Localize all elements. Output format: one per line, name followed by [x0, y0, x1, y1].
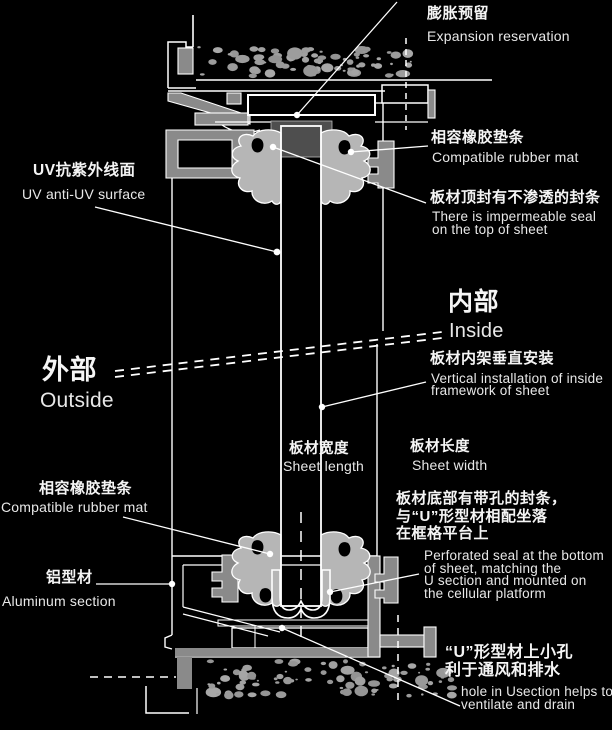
- label-line: “U”形型材上小孔: [445, 644, 573, 662]
- aggregate-dot: [371, 689, 377, 694]
- aggregate-dot: [213, 47, 223, 53]
- aggregate-dot: [260, 48, 265, 52]
- leader-dot: [319, 404, 325, 410]
- aggregate-dot: [400, 671, 407, 675]
- aggregate-dot: [224, 669, 228, 671]
- label-sheet-width-cn: 板材长度: [410, 440, 470, 455]
- u-section-channel: [232, 628, 368, 648]
- top-concrete-strip: [197, 46, 413, 78]
- aggregate-dot: [277, 674, 284, 679]
- aggregate-dot: [208, 59, 216, 65]
- aggregate-dot: [307, 47, 314, 51]
- frame-notch: [165, 635, 172, 649]
- aggregate-dot: [415, 675, 428, 686]
- cellular-platform: [218, 620, 368, 626]
- aggregate-dot: [253, 55, 261, 61]
- aggregate-dot: [351, 69, 359, 75]
- aggregate-dot: [264, 62, 266, 64]
- label-aluminum-en: Aluminum section: [2, 594, 116, 609]
- label-uv-cn: UV抗紫外线面: [33, 163, 136, 179]
- aggregate-dot: [249, 74, 257, 79]
- aggregate-dot: [390, 63, 393, 65]
- aggregate-dot: [368, 680, 380, 687]
- aggregate-dot: [290, 68, 296, 71]
- leader-vertical-install: [322, 382, 426, 407]
- aggregate-dot: [343, 70, 346, 72]
- aggregate-dot: [200, 73, 205, 75]
- aggregate-dot: [396, 70, 410, 77]
- aggregate-dot: [355, 677, 366, 686]
- aggregate-dot: [403, 49, 414, 58]
- diagram: 膨胀预留 Expansion reservation 相容橡胶垫条 Compat…: [0, 0, 612, 730]
- inside-outside-boundary: [115, 332, 442, 371]
- aggregate-dot: [288, 661, 298, 667]
- aggregate-dot: [439, 680, 442, 683]
- aggregate-dot: [283, 677, 292, 684]
- top-right-profile-box: [382, 85, 428, 103]
- label-line: 在框格平台上: [396, 525, 567, 543]
- aggregate-dot: [408, 663, 417, 669]
- aggregate-dot: [227, 63, 238, 71]
- aggregate-dot: [197, 46, 200, 48]
- leader-dot: [267, 551, 273, 557]
- aggregate-dot: [206, 687, 221, 697]
- horizontal-profile-bar: [195, 113, 248, 125]
- bottom-left-wing-bracket: [212, 555, 238, 602]
- aggregate-dot: [365, 671, 368, 673]
- aggregate-dot: [355, 686, 369, 697]
- aggregate-dot: [217, 682, 221, 685]
- aggregate-dot: [224, 692, 233, 700]
- aggregate-dot: [336, 675, 344, 682]
- aggregate-dot: [236, 684, 245, 691]
- aggregate-dot: [387, 677, 394, 681]
- aggregate-dot: [382, 666, 387, 669]
- leader-uv: [95, 207, 277, 252]
- aggregate-dot: [249, 66, 259, 74]
- gasket-hole: [260, 588, 272, 602]
- aggregate-dot: [447, 685, 457, 690]
- aggregate-dot: [304, 667, 311, 672]
- aggregate-dot: [327, 680, 333, 684]
- aggregate-dot: [207, 683, 210, 685]
- label-bottom-seal-en: Perforated seal at the bottom of sheet, …: [424, 550, 604, 601]
- aggregate-dot: [321, 670, 327, 675]
- leader-rubber-bottom: [123, 517, 270, 554]
- aggregate-dot: [371, 693, 375, 695]
- aggregate-dot: [250, 46, 259, 51]
- aggregate-dot: [425, 668, 430, 671]
- aggregate-dot: [387, 51, 392, 54]
- aggregate-dot: [265, 69, 276, 77]
- label-rubber-mat-bottom-cn: 相容橡胶垫条: [39, 481, 132, 497]
- aggregate-dot: [358, 62, 365, 67]
- label-outside-en: Outside: [40, 390, 114, 412]
- label-inside-en: Inside: [449, 321, 504, 342]
- aggregate-dot: [356, 57, 360, 59]
- aggregate-dot: [337, 55, 341, 58]
- label-rubber-mat-top-cn: 相容橡胶垫条: [431, 130, 524, 146]
- label-line: framework of sheet: [431, 385, 603, 397]
- label-outside-cn: 外部: [42, 356, 97, 384]
- bottom-concrete-strip: [206, 659, 457, 700]
- aggregate-dot: [239, 670, 248, 678]
- bottom-left-outline: [146, 686, 189, 713]
- leader-dot: [294, 112, 300, 118]
- label-rubber-mat-top-en: Compatible rubber mat: [432, 150, 579, 165]
- inside-outside-boundary: [115, 338, 442, 377]
- aggregate-dot: [347, 59, 354, 65]
- label-top-seal-en: There is impermeable seal on the top of …: [432, 211, 596, 236]
- aggregate-dot: [285, 671, 287, 673]
- label-inside-cn: 内部: [448, 289, 499, 315]
- aggregate-dot: [276, 691, 287, 698]
- label-aluminum-cn: 铝型材: [46, 570, 93, 586]
- aggregate-dot: [418, 672, 420, 674]
- aggregate-dot: [391, 52, 401, 59]
- label-sheet-length-cn: 板材宽度: [289, 442, 349, 457]
- label-line: on the top of sheet: [432, 224, 596, 237]
- leader-dot: [270, 144, 276, 150]
- t-profile-arm: [380, 635, 424, 647]
- label-bottom-seal-cn: 板材底部有带孔的封条， 与“U”形型材相配坐落 在框格平台上: [396, 490, 567, 543]
- leader-dot: [279, 625, 285, 631]
- label-rubber-mat-bottom-en: Compatible rubber mat: [1, 500, 148, 515]
- label-sheet-width-en: Sheet width: [412, 458, 487, 473]
- aggregate-dot: [271, 48, 279, 53]
- label-vertical-installation-en: Vertical installation of inside framewor…: [431, 373, 603, 397]
- aggregate-dot: [242, 665, 252, 671]
- aggregate-dot: [371, 63, 376, 66]
- label-line: 板材底部有带孔的封条，: [396, 490, 567, 508]
- top-right-end-slab: [428, 90, 435, 118]
- label-line: 利于通风和排水: [445, 662, 573, 680]
- aggregate-dot: [363, 51, 366, 53]
- label-line: the cellular platform: [424, 588, 604, 601]
- aggregate-dot: [228, 53, 233, 56]
- top-left-bracket: [178, 48, 193, 74]
- leader-dot: [274, 249, 281, 256]
- label-u-hole-en: hole in Usection helps to ventilate and …: [461, 685, 612, 711]
- aggregate-dot: [340, 687, 344, 689]
- aggregate-dot: [389, 684, 398, 689]
- aggregate-dot: [295, 679, 298, 681]
- aggregate-dot: [311, 53, 318, 57]
- aggregate-dot: [392, 665, 395, 667]
- aggregate-dot: [287, 47, 302, 59]
- label-expansion-cn: 膨胀预留: [427, 6, 489, 22]
- anchor-bar: [177, 657, 192, 689]
- aggregate-dot: [275, 681, 279, 684]
- aggregate-dot: [385, 73, 393, 77]
- label-expansion-en: Expansion reservation: [427, 29, 570, 44]
- label-uv-en: UV anti-UV surface: [22, 187, 145, 202]
- aggregate-dot: [275, 659, 284, 664]
- aggregate-dot: [447, 692, 457, 699]
- aggregate-dot: [321, 63, 333, 72]
- aggregate-dot: [234, 691, 243, 697]
- aggregate-dot: [318, 62, 321, 64]
- label-line: 与“U”形型材相配坐落: [396, 508, 567, 526]
- aggregate-dot: [377, 57, 381, 60]
- base-gray-band: [175, 648, 368, 656]
- aggregate-dot: [329, 661, 338, 669]
- aggregate-dot: [220, 675, 230, 682]
- aggregate-dot: [305, 678, 312, 682]
- t-profile-cap: [424, 627, 436, 657]
- top-right-wing-bracket: [368, 141, 394, 188]
- aggregate-dot: [421, 693, 424, 695]
- aggregate-dot: [302, 57, 309, 63]
- aggregate-dot: [426, 663, 430, 666]
- aggregate-dot: [216, 693, 219, 695]
- gasket-hole: [252, 138, 264, 152]
- aggregate-dot: [363, 54, 369, 57]
- aggregate-dot: [248, 692, 257, 697]
- aggregate-dot: [247, 672, 256, 680]
- small-block: [227, 93, 241, 104]
- label-line: ventilate and drain: [461, 698, 612, 711]
- aggregate-dot: [318, 55, 327, 60]
- aggregate-dot: [320, 51, 323, 53]
- label-vertical-installation-cn: 板材内架垂直安装: [430, 351, 554, 367]
- aggregate-dot: [342, 688, 352, 696]
- leader-dot: [327, 589, 333, 595]
- aggregate-dot: [343, 659, 348, 663]
- aggregate-dot: [276, 61, 285, 68]
- leader-dot: [348, 149, 354, 155]
- label-top-seal-cn: 板材顶封有不渗透的封条: [430, 190, 601, 206]
- aggregate-dot: [321, 662, 326, 665]
- aggregate-dot: [303, 65, 318, 77]
- aggregate-dot: [257, 680, 259, 682]
- aggregate-dot: [235, 55, 249, 63]
- aggregate-dot: [207, 659, 214, 663]
- label-sheet-length-en: Sheet length: [283, 459, 364, 474]
- aggregate-dot: [410, 61, 412, 63]
- aggregate-dot: [345, 682, 354, 689]
- leader-dot: [169, 581, 175, 587]
- aggregate-dot: [428, 681, 433, 685]
- aggregate-dot: [260, 690, 270, 696]
- aggregate-dot: [252, 683, 260, 687]
- aggregate-dot: [406, 694, 411, 698]
- label-u-hole-cn: “U”形型材上小孔 利于通风和排水: [445, 644, 573, 679]
